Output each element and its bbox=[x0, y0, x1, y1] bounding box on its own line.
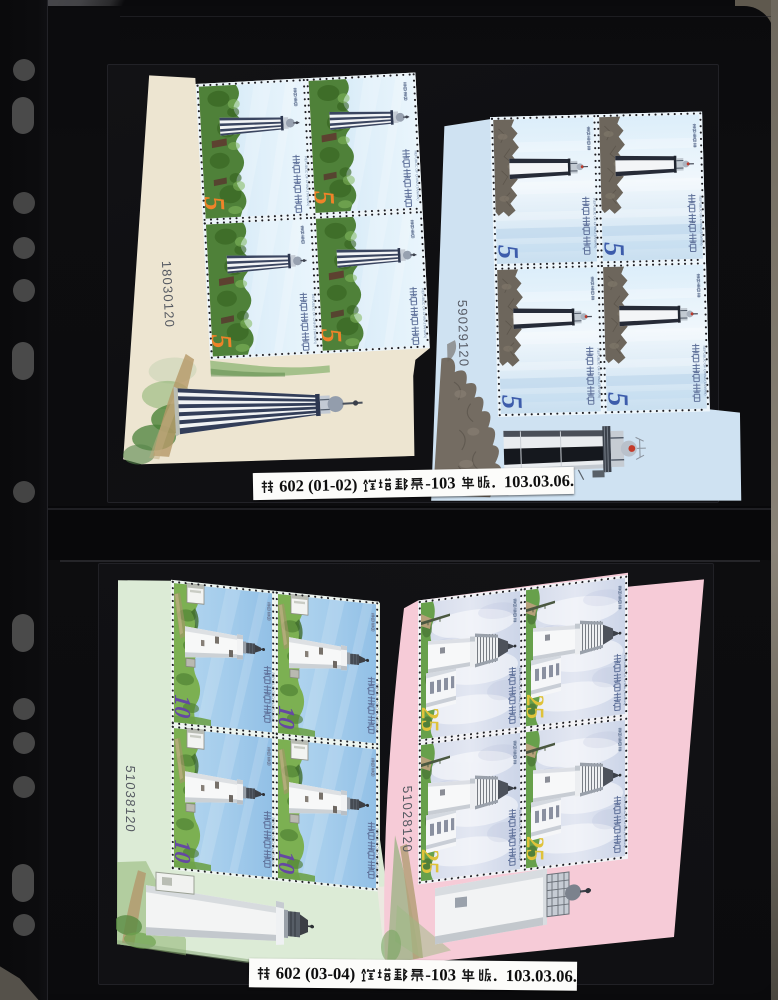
svg-text:59029120: 59029120 bbox=[455, 300, 472, 368]
svg-text:51028120: 51028120 bbox=[400, 785, 415, 854]
svg-text:51038120: 51038120 bbox=[123, 765, 138, 834]
